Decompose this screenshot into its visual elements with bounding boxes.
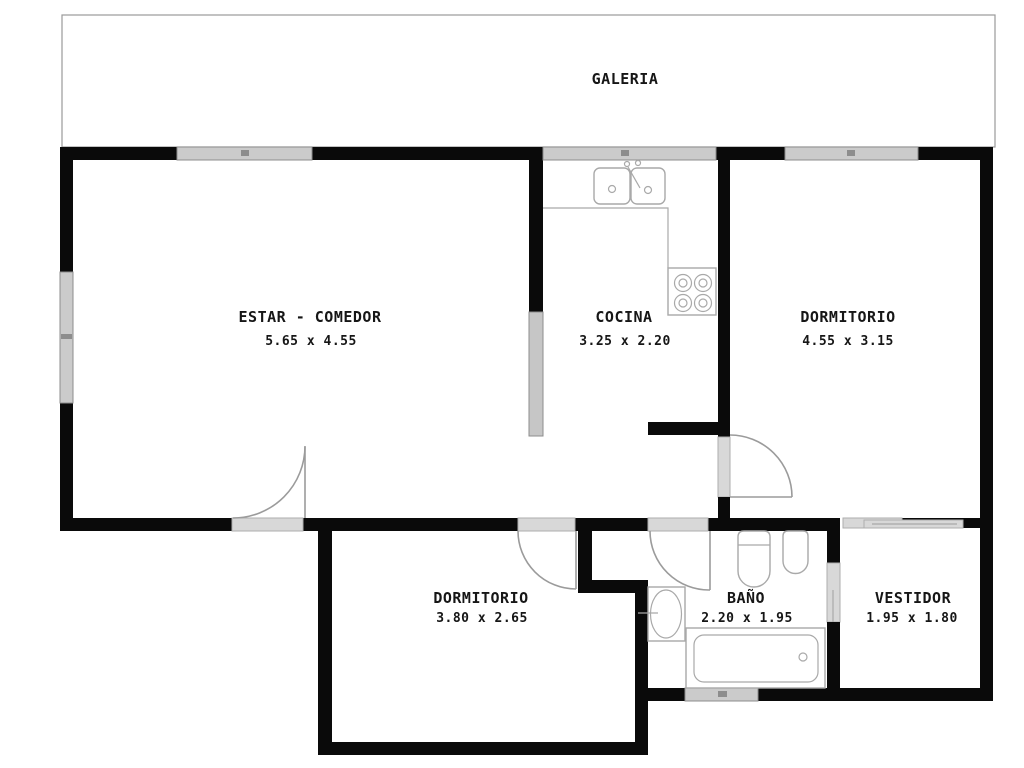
galeria-label: GALERIA: [592, 70, 659, 88]
wall-bano-vestidor-upper: [827, 518, 840, 563]
wall-dormitorio2-left: [318, 531, 332, 755]
bano-dims: 2.20 x 1.95: [701, 611, 793, 626]
wall-right: [980, 147, 993, 701]
dormitorio1-dims: 4.55 x 3.15: [802, 334, 894, 349]
bano-door-arc: [650, 531, 710, 590]
wall-top-2: [312, 147, 543, 160]
dormitorio2-label: DORMITORIO: [433, 589, 528, 607]
wall-bano-left-horiz: [592, 580, 648, 593]
wall-bottom-bano-1: [635, 688, 685, 701]
door-opening-dormitorio2: [518, 518, 575, 531]
wall-cocina-dormitorio1-lower: [718, 497, 730, 531]
bidet: [783, 531, 808, 573]
wall-left-upper: [60, 147, 73, 272]
door-opening-entry: [232, 518, 303, 531]
sink-tap-2: [636, 161, 641, 166]
door-opening-bano: [648, 518, 708, 531]
dormitorio1-label: DORMITORIO: [800, 308, 895, 326]
wall-dormitorio2-bottom: [318, 742, 648, 755]
estar-dims: 5.65 x 4.55: [265, 334, 357, 349]
cocina-label: COCINA: [595, 308, 652, 326]
bano-label: BAÑO: [727, 588, 765, 607]
wall-cocina-stub: [648, 422, 730, 435]
wall-mid-2: [303, 518, 518, 531]
kitchen-counter: [543, 208, 668, 268]
wall-left-lower: [60, 403, 73, 531]
wall-cocina-dormitorio1: [718, 147, 730, 437]
vestidor-label: VESTIDOR: [875, 589, 952, 607]
door-opening-dormitorio1: [718, 437, 730, 497]
wall-bano-left-vert: [578, 531, 592, 593]
window-tick-3: [847, 150, 855, 156]
entry-door-arc: [233, 446, 305, 518]
window-tick-5: [718, 691, 727, 697]
window-tick-2: [621, 150, 629, 156]
vestidor-dims: 1.95 x 1.80: [866, 611, 958, 626]
wall-mid-3: [575, 518, 648, 531]
floor-plan: GALERIA ESTAR - COMEDOR 5.65 x 4.55 COCI…: [0, 0, 1024, 768]
dormitorio1-door-arc: [730, 435, 792, 497]
wall-dormitorio2-right: [635, 593, 648, 755]
estar-label: ESTAR - COMEDOR: [239, 308, 382, 326]
window-tick-1: [241, 150, 249, 156]
galeria-area: [62, 15, 995, 147]
washbasin-cabinet: [648, 587, 685, 641]
cocina-dims: 3.25 x 2.20: [579, 334, 671, 349]
window-tick-4: [61, 334, 72, 339]
stove: [668, 268, 716, 315]
wall-bano-vestidor-lower: [827, 622, 840, 701]
wall-estar-cocina: [529, 147, 543, 312]
sink-tap-1: [625, 162, 630, 167]
bathtub: [686, 628, 825, 688]
low-wall-estar-cocina: [529, 312, 543, 436]
dormitorio2-dims: 3.80 x 2.65: [436, 611, 528, 626]
floor-plan-canvas: GALERIA ESTAR - COMEDOR 5.65 x 4.55 COCI…: [0, 0, 1024, 768]
toilet: [738, 531, 770, 587]
wall-top-1: [60, 147, 177, 160]
window-cocina-top: [543, 147, 716, 160]
wall-bottom-vestidor: [758, 688, 993, 701]
dormitorio2-door-arc: [518, 531, 576, 589]
wall-mid-1: [60, 518, 232, 531]
